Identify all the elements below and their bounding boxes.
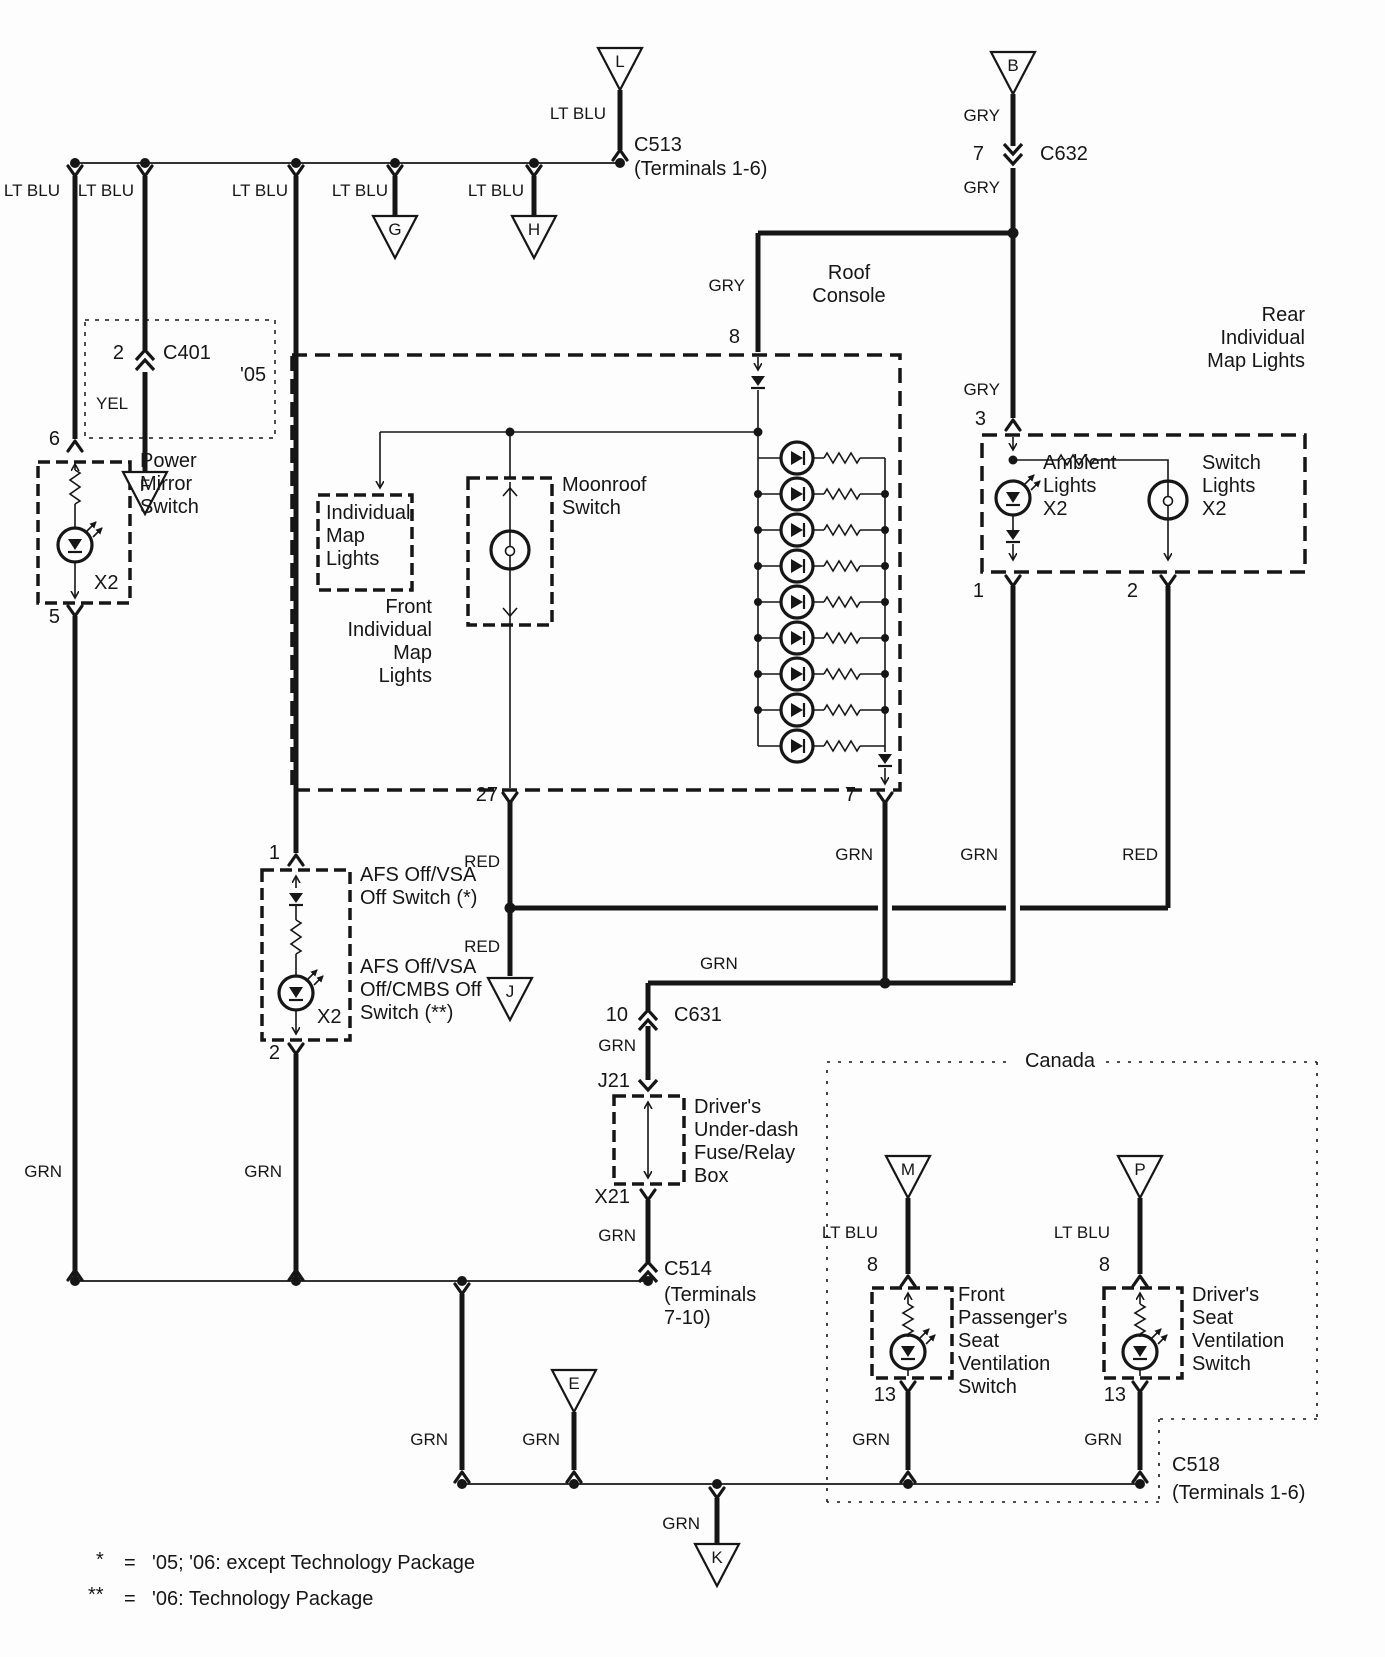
pin-label-10: 10: [596, 1004, 628, 1027]
grn-net: [648, 793, 1013, 1010]
ref-letter-j: J: [488, 982, 532, 1002]
wire-color-label: LT BLU: [322, 181, 388, 201]
wire-color-label: GRN: [592, 1036, 636, 1056]
wiring-diagram-page: LT BLU LT BLU LT BLU LT BLU LT BLU LT BL…: [0, 0, 1385, 1657]
afs-switch-06-label: AFS Off/VSA Off/CMBS Off Switch (**): [360, 956, 482, 1025]
wire-color-label: GRY: [683, 276, 745, 296]
fuse-relay-box-label: Driver's Under-dash Fuse/Relay Box: [694, 1096, 799, 1188]
wire-color-label: GRY: [938, 106, 1000, 126]
footnote-2-symbol: **: [88, 1584, 104, 1607]
resistor: [903, 1304, 913, 1334]
wire-color-label: GRN: [1078, 1430, 1122, 1450]
fuse-relay-box: [614, 1096, 684, 1184]
switch-lights-label: Switch Lights X2: [1202, 452, 1261, 521]
pin-label-8: 8: [716, 326, 740, 349]
wire-color-label: GRN: [516, 1430, 560, 1450]
connector-c513-terminals: (Terminals 1-6): [634, 158, 767, 181]
wire-color-label: LT BLU: [818, 1223, 878, 1243]
roof-console: [292, 355, 900, 790]
footnote-1-symbol: *: [96, 1549, 104, 1572]
pin-label-2: 2: [100, 342, 124, 365]
rear-individual-map-lights-label: Rear Individual Map Lights: [1150, 304, 1305, 373]
wiring-diagram-canvas: [0, 0, 1385, 1657]
wire-color-label: GRN: [700, 954, 738, 974]
canada-label: Canada: [1012, 1050, 1108, 1073]
wire-color-label: LT BLU: [222, 181, 288, 201]
connector-j21-label: J21: [584, 1070, 630, 1093]
connector-c518-terminals: (Terminals 1-6): [1172, 1482, 1305, 1505]
ref-letter-k: K: [695, 1548, 739, 1568]
ref-letter-l: L: [598, 52, 642, 72]
year-05-label: '05: [240, 364, 266, 387]
afs-x2-label: X2: [317, 1006, 341, 1029]
bottom-bus: [457, 1370, 1145, 1586]
power-mirror-switch-label: Power Mirror Switch: [140, 450, 199, 519]
wire-color-label: LT BLU: [538, 104, 606, 124]
wire-color-label: GRN: [238, 1162, 282, 1182]
ref-letter-b: B: [991, 56, 1035, 76]
afs-switch-05-label: AFS Off/VSA Off Switch (*): [360, 864, 477, 910]
wire-color-label: GRN: [404, 1430, 448, 1450]
wire-color-label: GRN: [656, 1514, 700, 1534]
bulb: [491, 531, 529, 569]
wire-color-label: GRN: [18, 1162, 62, 1182]
red-net: [488, 793, 1168, 1020]
connector-x21-label: X21: [580, 1186, 630, 1209]
driver-vent-label: Driver's Seat Ventilation Switch: [1192, 1284, 1284, 1376]
ref-letter-p: P: [1118, 1160, 1162, 1180]
ref-letter-m: M: [886, 1160, 930, 1180]
pin-label-1: 1: [256, 842, 280, 865]
top-bus: [68, 158, 625, 176]
ambient-lights-label: Ambient Lights X2: [1043, 452, 1116, 521]
ref-letter-g: G: [373, 220, 417, 240]
connector-c514-terminals: (Terminals 7-10): [664, 1284, 756, 1330]
pin-label-13: 13: [864, 1384, 896, 1407]
wire-color-label: GRY: [938, 380, 1000, 400]
led: [891, 1329, 935, 1369]
connector-c632-symbol: [1004, 144, 1022, 164]
connector-c401-label: C401: [163, 342, 211, 365]
pin-label-7: 7: [962, 143, 984, 166]
wire-color-label: YEL: [96, 394, 128, 414]
connector-j21-symbol: [639, 1080, 657, 1090]
roof-console-label: Roof Console: [790, 262, 908, 308]
front-individual-map-lights-label: Front Individual Map Lights: [300, 596, 432, 688]
wire-color-label: LT BLU: [1050, 1223, 1110, 1243]
wire-color-label: RED: [1100, 845, 1158, 865]
connector-c632-label: C632: [1040, 143, 1088, 166]
pin-label-13: 13: [1094, 1384, 1126, 1407]
pin-label-8: 8: [1086, 1254, 1110, 1277]
ref-letter-h: H: [512, 220, 556, 240]
pin-label-8: 8: [854, 1254, 878, 1277]
pin-label-7: 7: [826, 784, 856, 807]
resistor: [70, 470, 80, 504]
roof-console-box: [292, 355, 900, 790]
footnote-2-text: '06: Technology Package: [152, 1588, 373, 1611]
connector-c401-symbol: [136, 350, 154, 370]
led-ladder: [754, 442, 892, 784]
pin-label-2: 2: [1114, 580, 1138, 603]
wire-color-label: GRN: [815, 845, 873, 865]
individual-map-lights-label: Individual Map Lights: [326, 502, 411, 571]
footnote-2-eq: =: [124, 1588, 136, 1611]
wire-color-label: GRY: [938, 178, 1000, 198]
wire-color-label: LT BLU: [70, 181, 134, 201]
pin-label-5: 5: [36, 606, 60, 629]
connector-c514-label: C514: [664, 1258, 712, 1281]
front-passenger-vent-box: [872, 1288, 952, 1378]
wire-color-label: GRN: [592, 1226, 636, 1246]
front-passenger-vent-label: Front Passenger's Seat Ventilation Switc…: [958, 1284, 1067, 1399]
wire-color-label: RED: [456, 937, 500, 957]
canada-box: [827, 1062, 1317, 1502]
resistor: [291, 920, 301, 954]
wire-color-label: LT BLU: [458, 181, 524, 201]
power-mirror-x2-label: X2: [94, 572, 118, 595]
rear-output-wires: [1013, 586, 1168, 983]
led: [279, 970, 323, 1010]
connector-c513-label: C513: [634, 134, 682, 157]
connector-c518-label: C518: [1172, 1454, 1220, 1477]
resistor: [1135, 1304, 1145, 1334]
connector-c631-label: C631: [674, 1004, 722, 1027]
footnote-1-eq: =: [124, 1552, 136, 1575]
switch-bulb: [1149, 481, 1187, 519]
ref-letter-e: E: [552, 1374, 596, 1394]
wire-color-label: GRN: [940, 845, 998, 865]
pin-label-2: 2: [256, 1042, 280, 1065]
ambient-led: [996, 475, 1040, 515]
led: [58, 522, 102, 562]
pin-label-1: 1: [960, 580, 984, 603]
pin-label-3: 3: [964, 408, 986, 431]
wire-color-label: LT BLU: [0, 181, 60, 201]
footnote-1-text: '05; '06: except Technology Package: [152, 1552, 475, 1575]
pin-label-27: 27: [462, 784, 498, 807]
wire-color-label: GRN: [846, 1430, 890, 1450]
moonroof-switch-label: Moonroof Switch: [562, 474, 647, 520]
led: [1123, 1329, 1167, 1369]
pin-label-6: 6: [36, 428, 60, 451]
